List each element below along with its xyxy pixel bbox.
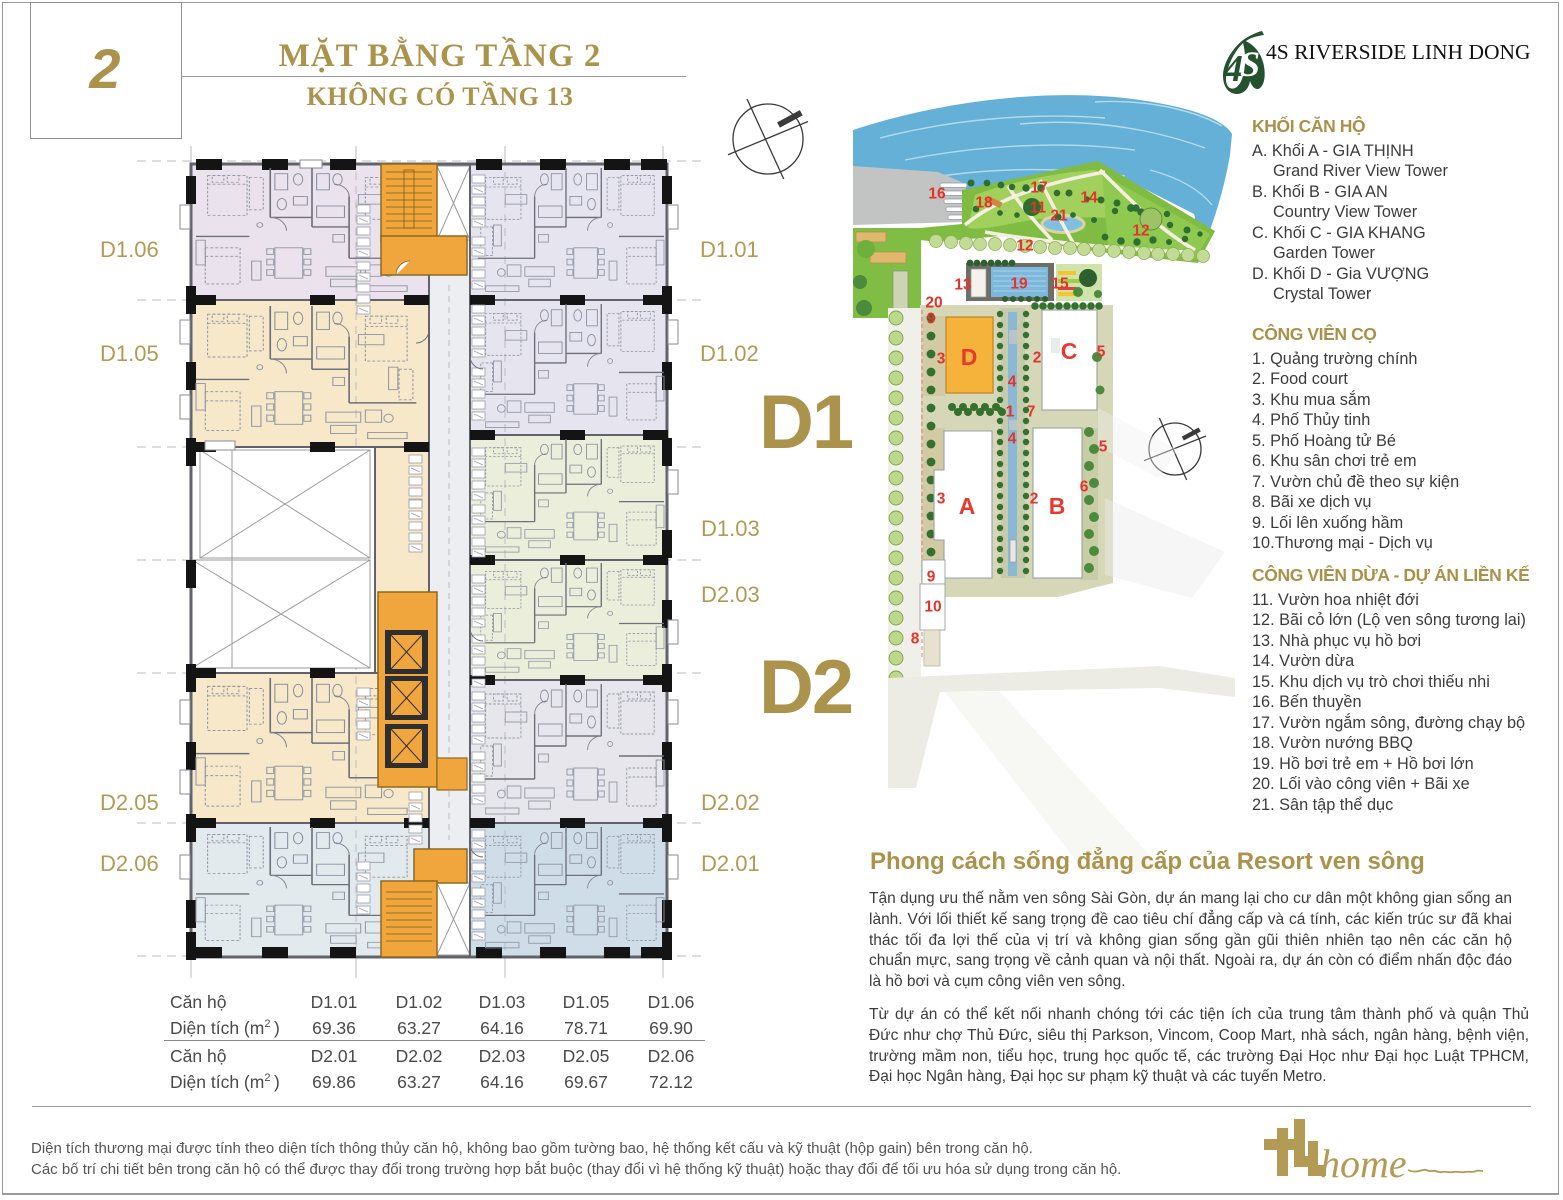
- svg-text:9: 9: [927, 569, 936, 586]
- svg-text:10: 10: [924, 599, 941, 616]
- svg-text:3: 3: [937, 491, 946, 508]
- svg-text:D: D: [961, 344, 978, 370]
- svg-text:4: 4: [1008, 431, 1017, 448]
- svg-text:20: 20: [925, 295, 942, 312]
- svg-text:12: 12: [1016, 238, 1033, 255]
- svg-text:12: 12: [1132, 223, 1149, 240]
- svg-text:C: C: [1061, 338, 1078, 364]
- svg-text:home: home: [1320, 1141, 1407, 1186]
- svg-text:1: 1: [1006, 404, 1015, 421]
- svg-text:3: 3: [937, 351, 946, 368]
- svg-text:2: 2: [1030, 491, 1039, 508]
- svg-text:11: 11: [1030, 200, 1047, 217]
- svg-text:14: 14: [1080, 190, 1098, 207]
- svg-text:18: 18: [975, 195, 993, 212]
- svg-text:19: 19: [1010, 276, 1028, 293]
- svg-text:21: 21: [1050, 208, 1068, 225]
- svg-text:16: 16: [928, 186, 946, 203]
- svg-text:5: 5: [1097, 344, 1106, 361]
- svg-text:S: S: [1240, 44, 1260, 84]
- svg-text:9: 9: [927, 311, 936, 328]
- svg-text:6: 6: [1080, 479, 1089, 496]
- svg-text:5: 5: [1099, 439, 1108, 456]
- svg-text:13: 13: [954, 277, 972, 294]
- svg-text:2: 2: [1033, 350, 1042, 367]
- svg-text:B: B: [1049, 493, 1066, 519]
- svg-text:4: 4: [1008, 374, 1017, 391]
- svg-text:A: A: [959, 493, 976, 519]
- svg-text:8: 8: [911, 631, 920, 648]
- svg-text:15: 15: [1051, 276, 1069, 293]
- svg-text:7: 7: [1027, 404, 1036, 421]
- svg-text:17: 17: [1030, 180, 1047, 197]
